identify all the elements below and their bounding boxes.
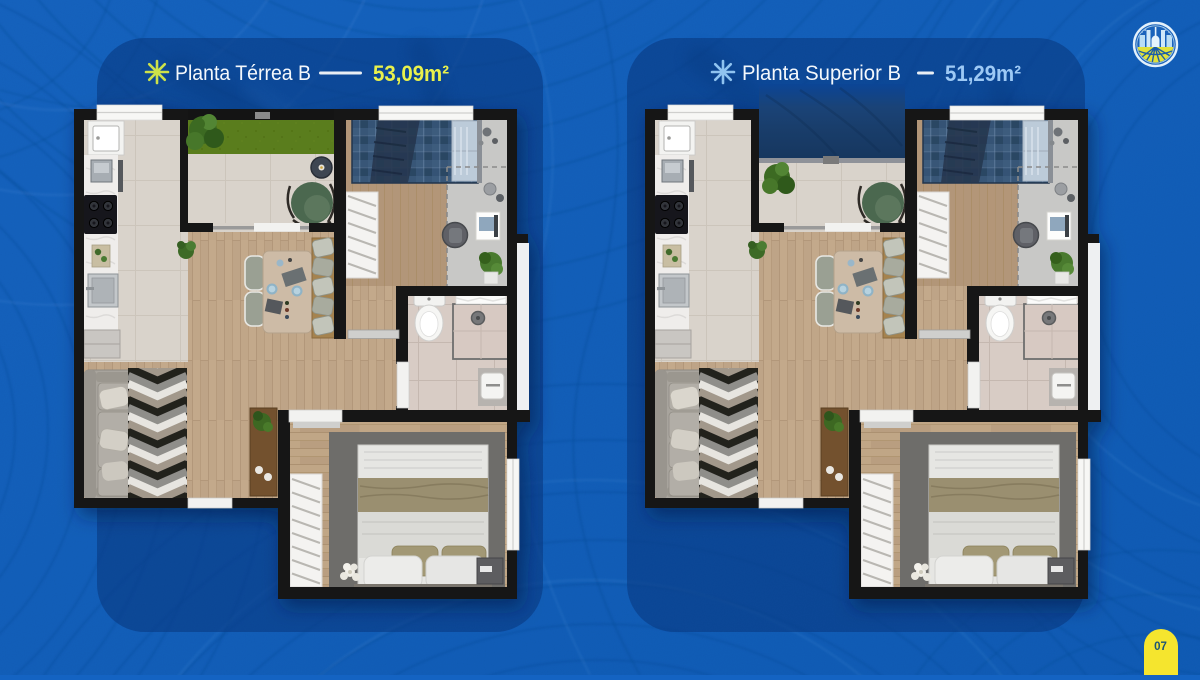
- svg-text:53,09m²: 53,09m²: [373, 61, 449, 86]
- svg-text:07: 07: [1154, 641, 1167, 653]
- svg-text:Planta Superior B: Planta Superior B: [742, 62, 901, 85]
- svg-text:51,29m²: 51,29m²: [945, 61, 1021, 86]
- svg-text:Planta Térrea B: Planta Térrea B: [175, 62, 311, 85]
